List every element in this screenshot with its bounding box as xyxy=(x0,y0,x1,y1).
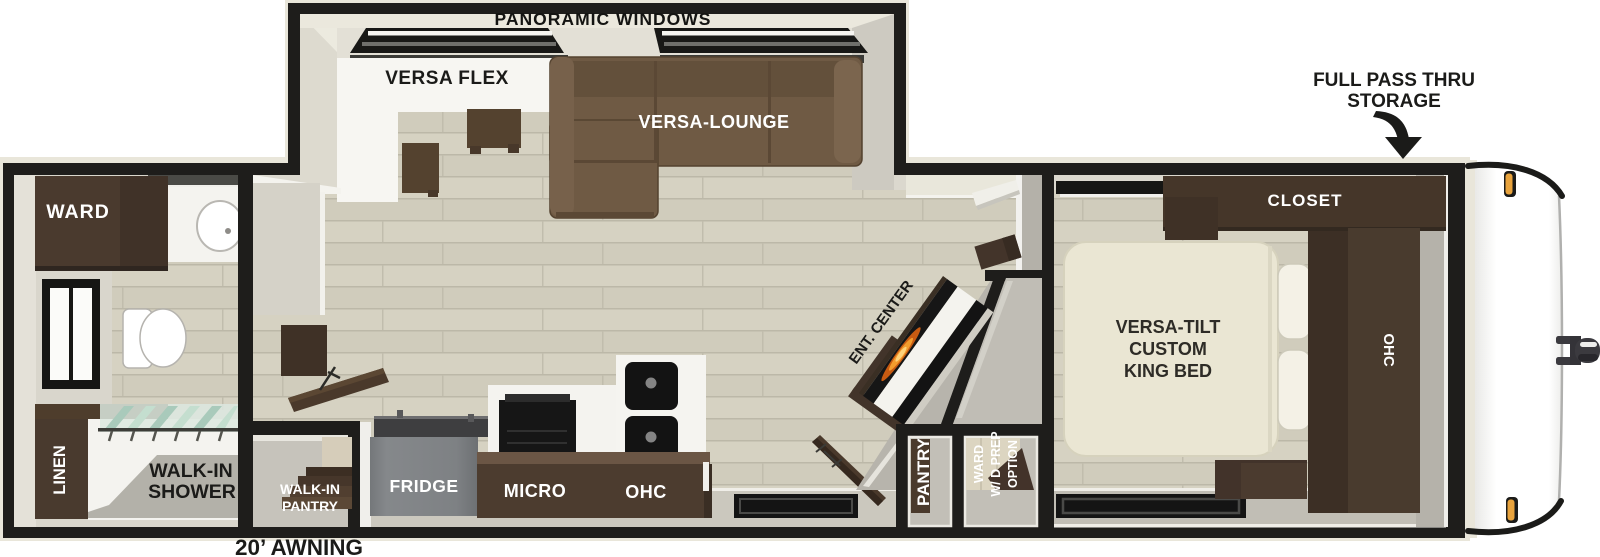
svg-text:FRIDGE: FRIDGE xyxy=(389,476,458,496)
svg-text:KING BED: KING BED xyxy=(1124,361,1212,381)
svg-text:WARD: WARD xyxy=(46,201,110,223)
svg-text:OHC: OHC xyxy=(625,482,667,502)
svg-text:WALK-IN: WALK-IN xyxy=(280,481,340,497)
svg-text:WALK-IN: WALK-IN xyxy=(149,460,232,482)
svg-text:STORAGE: STORAGE xyxy=(1347,91,1441,112)
svg-text:VERSA-TILT: VERSA-TILT xyxy=(1116,317,1221,337)
svg-text:LINEN: LINEN xyxy=(51,445,69,495)
svg-text:20’ AWNING: 20’ AWNING xyxy=(235,535,363,557)
svg-text:WARD: WARD xyxy=(972,445,986,483)
svg-text:MICRO: MICRO xyxy=(504,481,567,501)
svg-text:CLOSET: CLOSET xyxy=(1268,191,1343,210)
svg-text:SHOWER: SHOWER xyxy=(148,481,236,503)
svg-text:PANTRY: PANTRY xyxy=(282,498,339,514)
svg-text:PANORAMIC WINDOWS: PANORAMIC WINDOWS xyxy=(495,9,712,29)
svg-text:VERSA-LOUNGE: VERSA-LOUNGE xyxy=(638,112,789,132)
svg-text:OPTION: OPTION xyxy=(1006,440,1020,488)
svg-text:CUSTOM: CUSTOM xyxy=(1129,339,1207,359)
svg-text:FULL PASS THRU: FULL PASS THRU xyxy=(1313,70,1475,91)
svg-text:W/ D PREP: W/ D PREP xyxy=(989,431,1003,496)
svg-text:VERSA FLEX: VERSA FLEX xyxy=(385,68,509,89)
svg-text:PANTRY: PANTRY xyxy=(914,437,933,506)
svg-text:OHC: OHC xyxy=(1380,333,1397,367)
